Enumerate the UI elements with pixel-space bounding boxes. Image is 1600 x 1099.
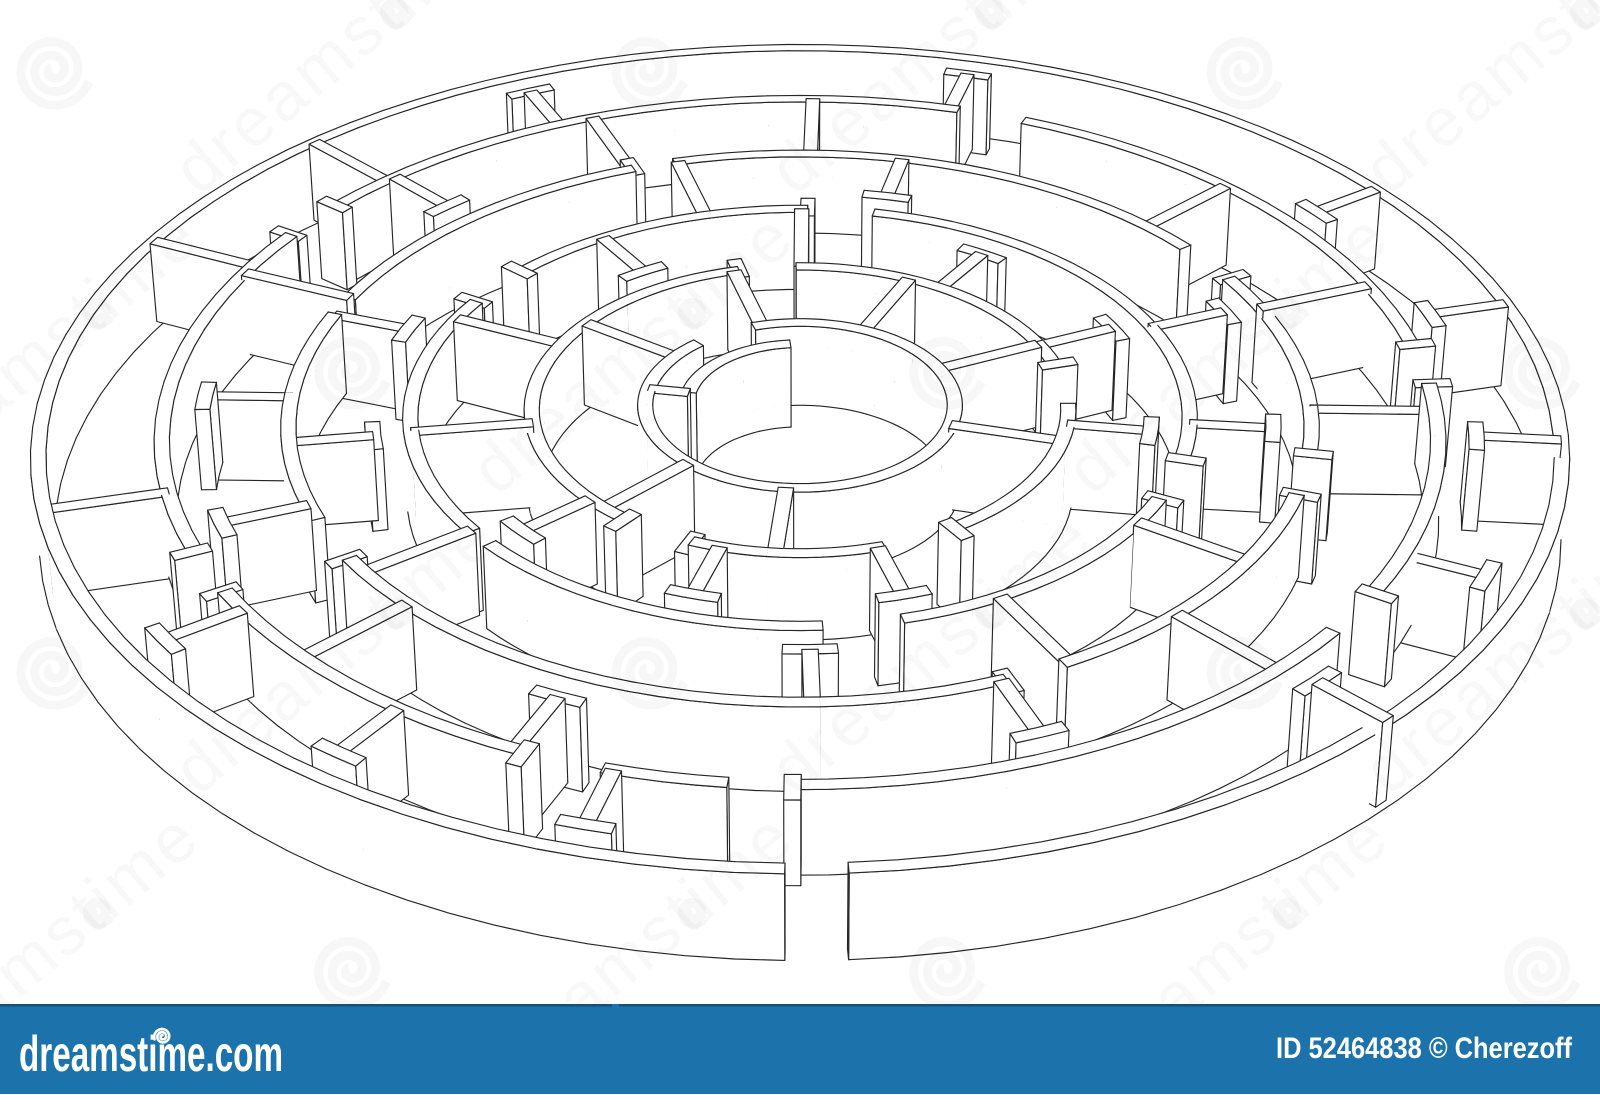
svg-text:ID 52464838 © Cherezoff: ID 52464838 © Cherezoff (1276, 1032, 1573, 1065)
svg-text:dreamstime.com: dreamstime.com (19, 1026, 283, 1082)
